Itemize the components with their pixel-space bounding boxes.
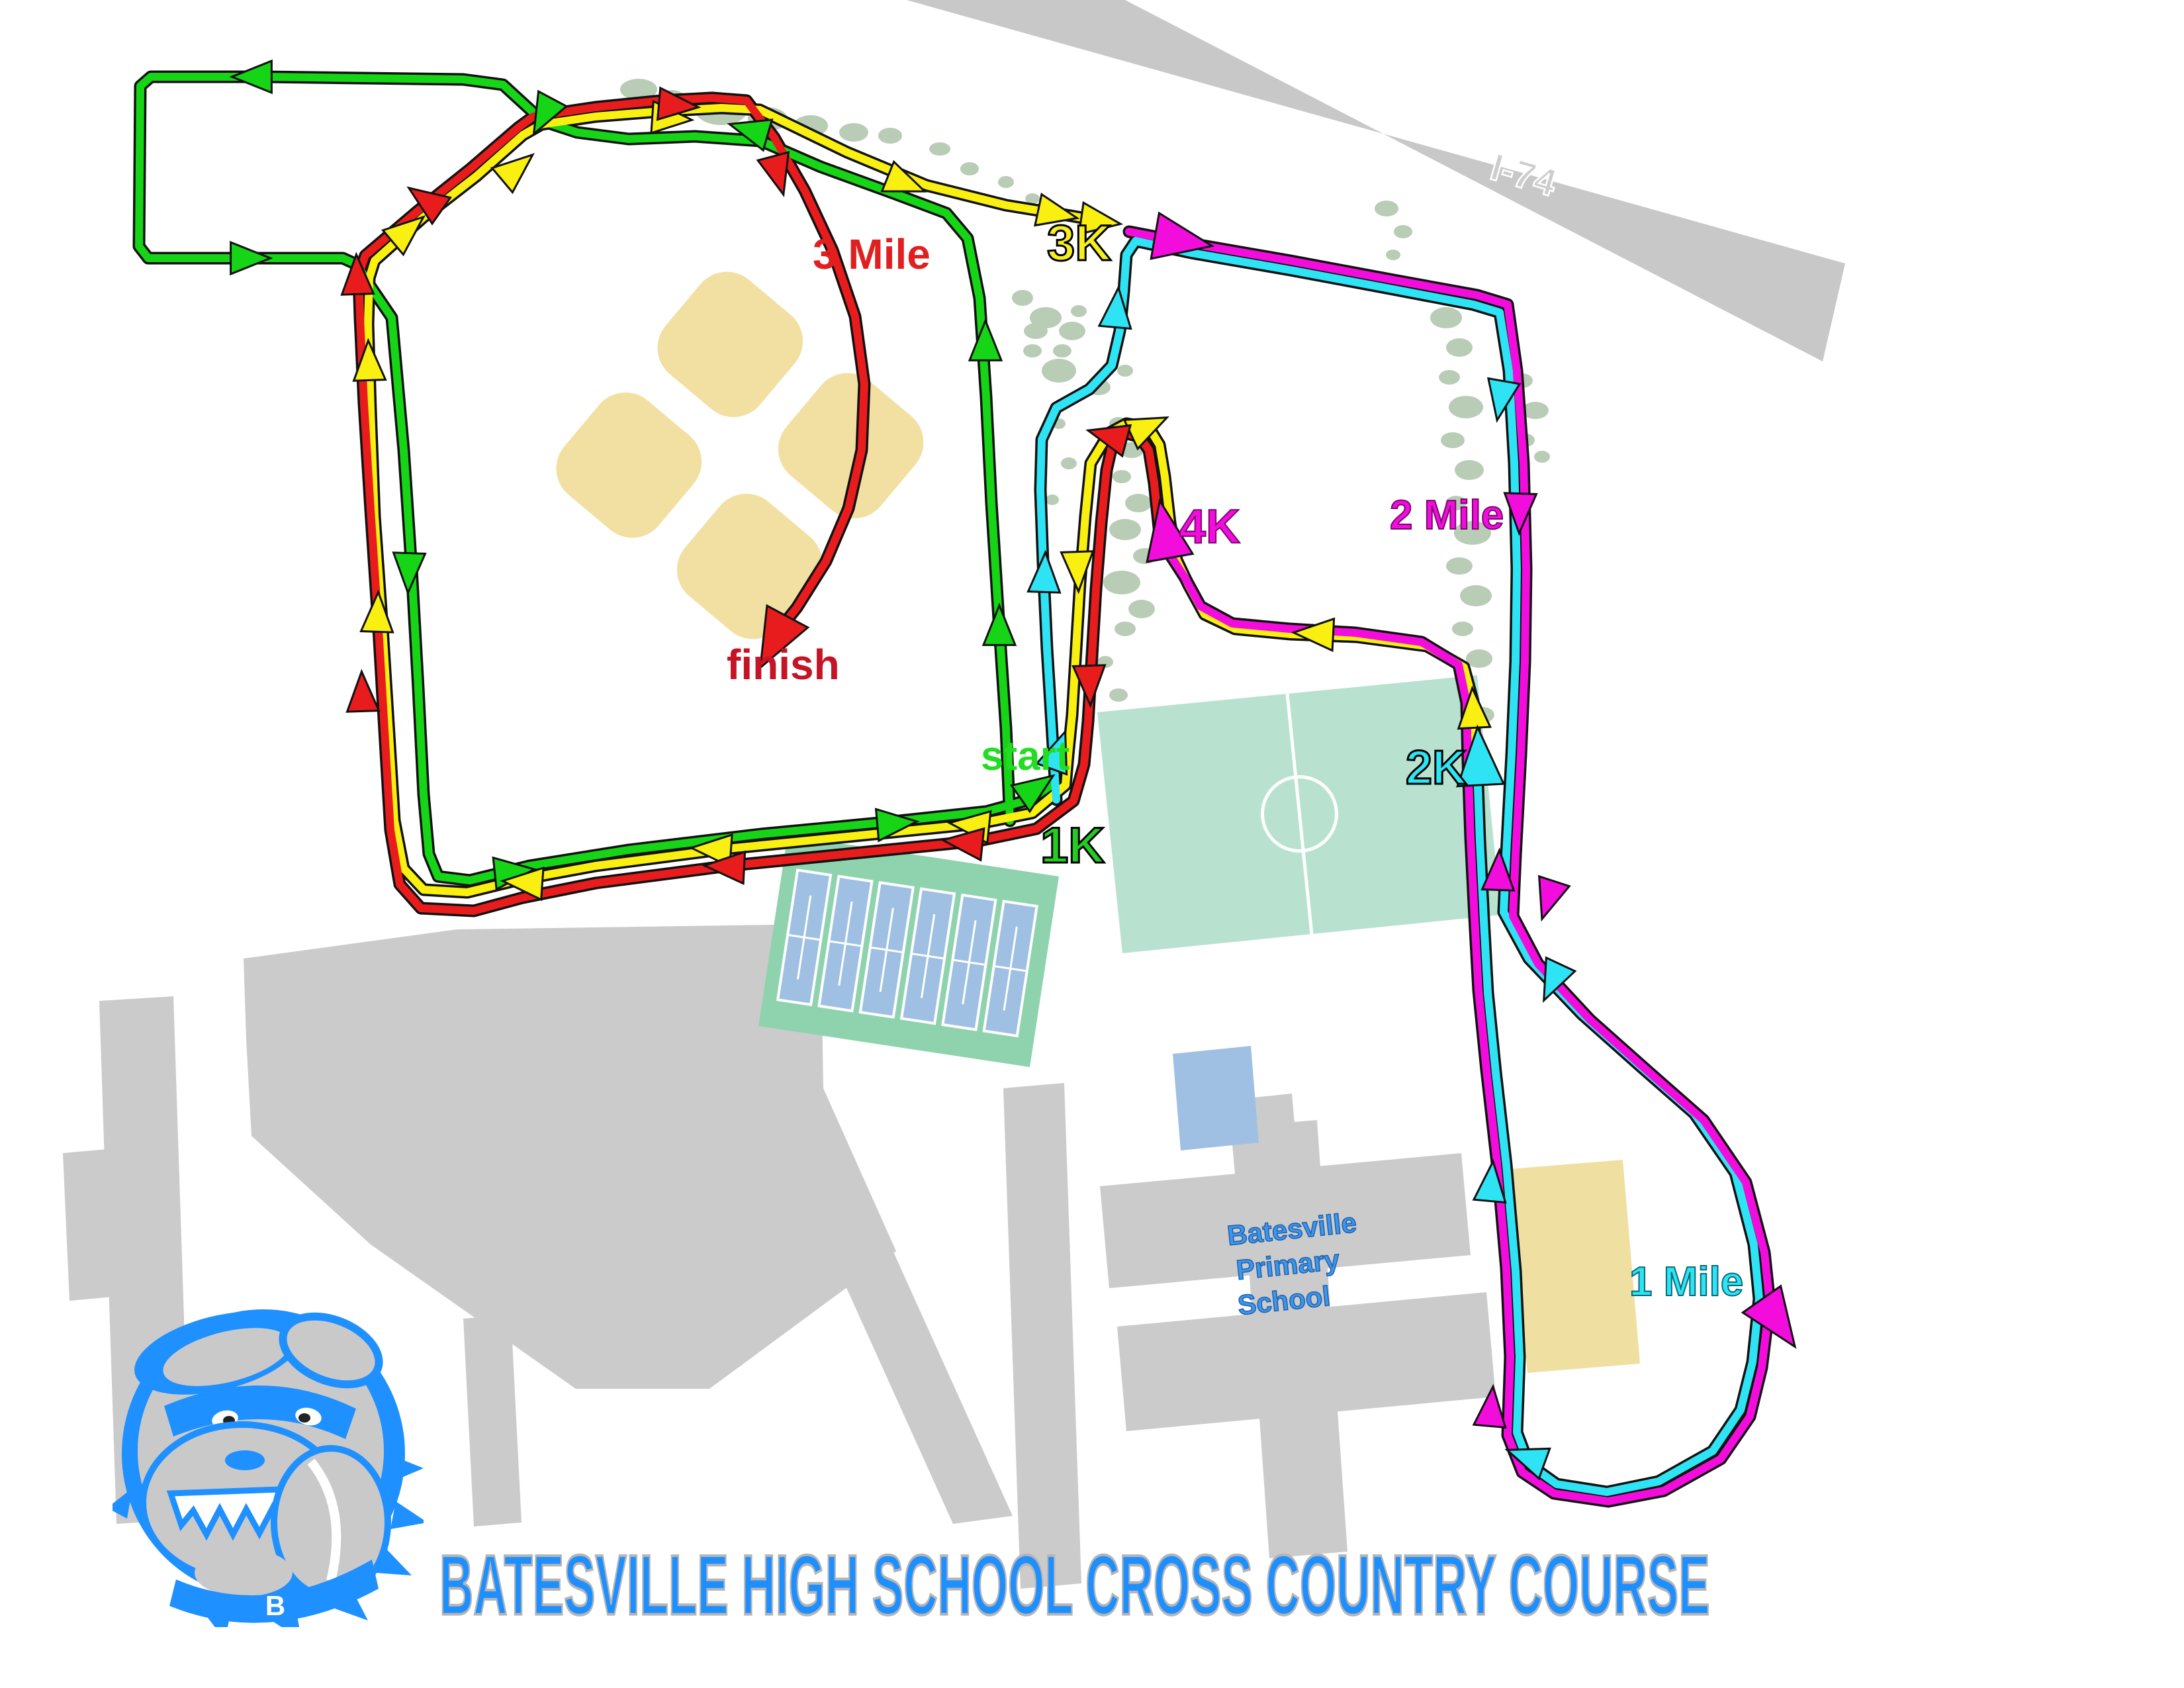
route-arrow-3k-to-4k [1503, 493, 1536, 534]
bulldog-logo-icon: B [113, 1289, 424, 1627]
tree [1071, 305, 1087, 317]
tree [1042, 359, 1076, 383]
tree [1061, 457, 1077, 469]
tree [1455, 460, 1484, 480]
practice-field [1510, 1160, 1640, 1373]
label-4k: 4K [1179, 503, 1240, 551]
building-hs-bottom-strip [463, 1315, 522, 1526]
tree [1046, 494, 1059, 505]
tree [1109, 688, 1128, 702]
label-2mile: 2 Mile [1390, 495, 1504, 536]
route-arrow-start-to-1k [983, 605, 1015, 645]
label-1k: 1K [1040, 821, 1105, 871]
tree [1053, 344, 1071, 357]
tree [1446, 557, 1473, 575]
tree [998, 176, 1014, 188]
tree [1023, 344, 1042, 357]
nose [225, 1450, 265, 1470]
label-3mile: 3 Mile [813, 233, 931, 275]
tree [1534, 451, 1550, 463]
tree [929, 142, 950, 156]
route-arrow-2k-to-3k [361, 592, 394, 633]
tree [1059, 322, 1085, 340]
label-start: start [981, 736, 1069, 777]
tree [1441, 432, 1465, 448]
blue-building [1173, 1046, 1259, 1150]
label-3k: 3K [1047, 218, 1111, 269]
route-arrow-start-to-1k [392, 553, 425, 594]
route-arrow-2k-to-3k [1062, 551, 1095, 592]
ball-fields-clover [542, 258, 937, 653]
tree [1375, 201, 1398, 216]
tree [1117, 365, 1133, 377]
tree [1439, 370, 1460, 385]
tree [878, 128, 902, 144]
label-2k: 2K [1406, 744, 1467, 792]
tree [1128, 600, 1155, 618]
tree [1125, 494, 1152, 512]
tree [1103, 571, 1140, 594]
page-title: BATESVILLE HIGH SCHOOL CROSS COUNTRY COU… [439, 1537, 1713, 1634]
tree [1025, 193, 1040, 204]
route-arrow-start-to-1k [232, 61, 271, 93]
route-arrow-1k-to-2k [1028, 552, 1062, 593]
building-school-west-strip [1003, 1083, 1081, 1589]
tree [1466, 649, 1492, 668]
tree [1446, 338, 1473, 357]
tree [1386, 250, 1400, 260]
tree [1449, 396, 1483, 418]
tree [1394, 225, 1412, 238]
tree [1113, 470, 1131, 483]
tree [960, 162, 979, 175]
building-hs-diagonal-spur [823, 1229, 1013, 1524]
course-map-page: start1K3 Mile3Kfinish4K2 Mile2K1 MileI-7… [0, 0, 2184, 1688]
tree [1430, 307, 1462, 328]
route-arrow-3k-to-4k [1527, 876, 1569, 924]
label-1mile: 1 Mile [1629, 1262, 1743, 1303]
route-arrow-2k-to-3k [1293, 617, 1334, 651]
label-finish: finish [727, 643, 840, 686]
tree [1452, 622, 1473, 636]
collar-letter: B [265, 1590, 285, 1621]
tree [1024, 323, 1048, 339]
tree [1109, 519, 1141, 540]
tree [1012, 290, 1033, 306]
tree [839, 123, 868, 142]
tree [1115, 622, 1136, 636]
tree [1460, 585, 1492, 606]
route-arrow-4k-to-finish [345, 671, 379, 712]
route-arrow-start-to-1k [970, 320, 1001, 360]
highway-i74 [907, 0, 1845, 361]
route-arrow-start-to-1k [231, 242, 271, 274]
